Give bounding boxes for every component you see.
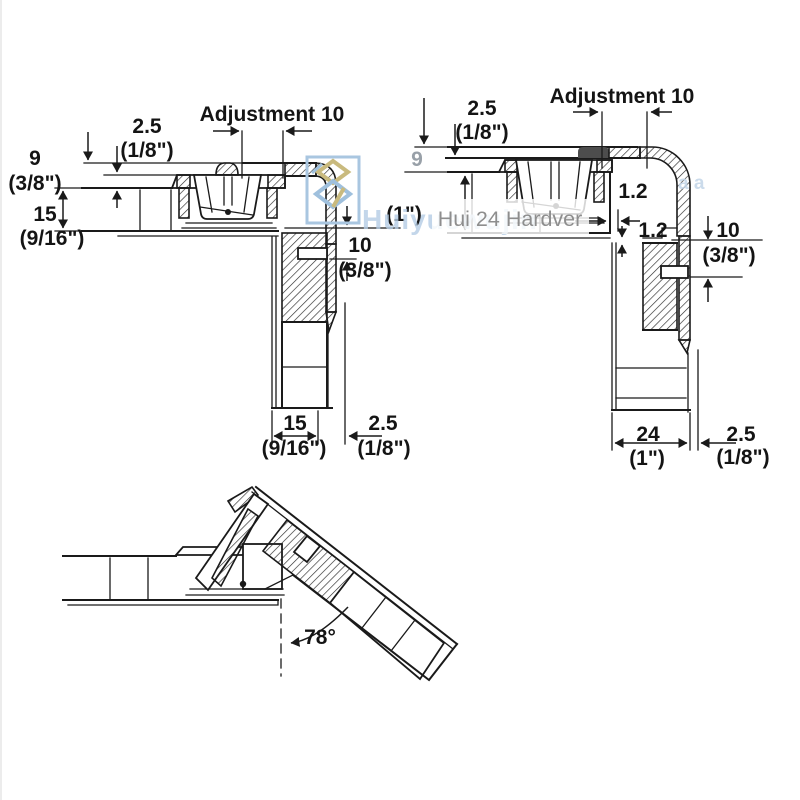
right-section-diagram: Adjustment 10 2.5 (1/8") 9 (1") 1.2 1.2 … bbox=[386, 85, 769, 470]
right-dim-clearance-a: 1.2 bbox=[618, 180, 647, 203]
left-dim-panel-in: (9/16") bbox=[20, 227, 85, 250]
left-dim-overlay-in: (3/8") bbox=[8, 172, 61, 195]
left-dim-reveal-in: (1/8") bbox=[357, 437, 410, 460]
watermark-fragment-text: a a bbox=[678, 173, 705, 194]
bottom-opening-angle-diagram: 78° bbox=[63, 487, 457, 680]
right-dim-clearance-b: 1.2 bbox=[638, 219, 667, 242]
technical-drawing-canvas: Adjustment 10 2.5 (1/8") 9 (3/8") 15 (9/… bbox=[0, 0, 800, 800]
right-dim-top-gap-in: (1/8") bbox=[455, 121, 508, 144]
right-dim-drill-mm: 10 bbox=[716, 219, 739, 242]
page-edge-artifact bbox=[0, 0, 2, 800]
right-dim-overlay-mm: 9 bbox=[411, 148, 423, 171]
bottom-opening-angle-label: 78° bbox=[304, 626, 336, 649]
adjustment-slot bbox=[578, 147, 609, 158]
left-dim-door-in: (9/16") bbox=[262, 437, 327, 460]
left-dim-overlay-mm: 9 bbox=[29, 147, 41, 170]
left-dim-top-gap-mm: 2.5 bbox=[132, 115, 162, 138]
hinge-technical-drawing-page: Adjustment 10 2.5 (1/8") 9 (3/8") 15 (9/… bbox=[0, 0, 800, 800]
left-dim-reveal-mm: 2.5 bbox=[368, 412, 398, 435]
left-dim-drill-in: (3/8") bbox=[338, 259, 391, 282]
left-dim-panel-mm: 15 bbox=[33, 203, 57, 226]
left-dim-top-gap-in: (1/8") bbox=[120, 139, 173, 162]
right-dim-reveal-in: (1/8") bbox=[716, 446, 769, 469]
right-dim-top-gap-mm: 2.5 bbox=[467, 97, 497, 120]
left-dim-drill-mm: 10 bbox=[348, 234, 371, 257]
watermark-overlay-text: Hui 24 Hardver bbox=[438, 207, 583, 231]
right-adjustment-label: Adjustment 10 bbox=[550, 85, 695, 108]
right-dim-door-in: (1") bbox=[629, 447, 665, 470]
left-dim-door-mm: 15 bbox=[283, 412, 307, 435]
right-dim-drill-in: (3/8") bbox=[702, 244, 755, 267]
left-adjustment-label: Adjustment 10 bbox=[200, 103, 345, 126]
right-dim-door-mm: 24 bbox=[636, 423, 660, 446]
right-dim-reveal-mm: 2.5 bbox=[726, 423, 756, 446]
